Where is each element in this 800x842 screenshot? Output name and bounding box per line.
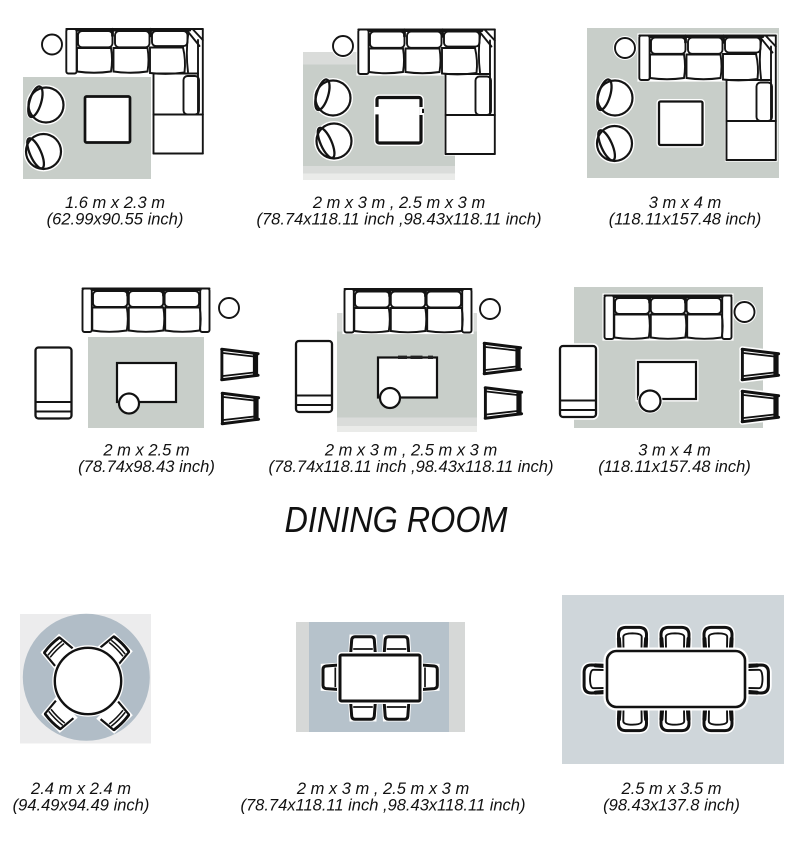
svg-text:DINING ROOM: DINING ROOM [285,499,509,540]
svg-text:(94.49x94.49 inch): (94.49x94.49 inch) [13,797,150,815]
svg-text:(62.99x90.55 inch): (62.99x90.55 inch) [47,211,184,229]
svg-text:(78.74x98.43 inch): (78.74x98.43 inch) [78,458,215,476]
svg-text:3 m x 4 m: 3 m x 4 m [638,442,710,460]
svg-text:(118.11x157.48 inch): (118.11x157.48 inch) [609,211,762,229]
svg-text:2.4 m x 2.4 m: 2.4 m x 2.4 m [30,780,131,798]
svg-text:2 m x 3 m , 2.5 m x 3 m: 2 m x 3 m , 2.5 m x 3 m [324,442,497,460]
svg-text:2 m x 3 m , 2.5 m x 3 m: 2 m x 3 m , 2.5 m x 3 m [296,780,469,798]
svg-text:(98.43x137.8 inch): (98.43x137.8 inch) [603,797,740,815]
svg-text:(118.11x157.48 inch): (118.11x157.48 inch) [598,458,751,476]
svg-text:2.5 m x 3.5 m: 2.5 m x 3.5 m [621,780,722,798]
svg-text:2 m x 3 m , 2.5 m x 3 m: 2 m x 3 m , 2.5 m x 3 m [312,194,485,212]
svg-text:3 m x 4 m: 3 m x 4 m [649,194,721,212]
svg-text:2 m x 2.5 m: 2 m x 2.5 m [102,442,189,460]
svg-text:(78.74x118.11 inch ,98.43x118.: (78.74x118.11 inch ,98.43x118.11 inch) [257,211,542,229]
svg-text:(78.74x118.11 inch ,98.43x118.: (78.74x118.11 inch ,98.43x118.11 inch) [269,458,554,476]
svg-text:1.6 m x 2.3 m: 1.6 m x 2.3 m [65,194,165,212]
svg-text:(78.74x118.11 inch ,98.43x118.: (78.74x118.11 inch ,98.43x118.11 inch) [241,797,526,815]
